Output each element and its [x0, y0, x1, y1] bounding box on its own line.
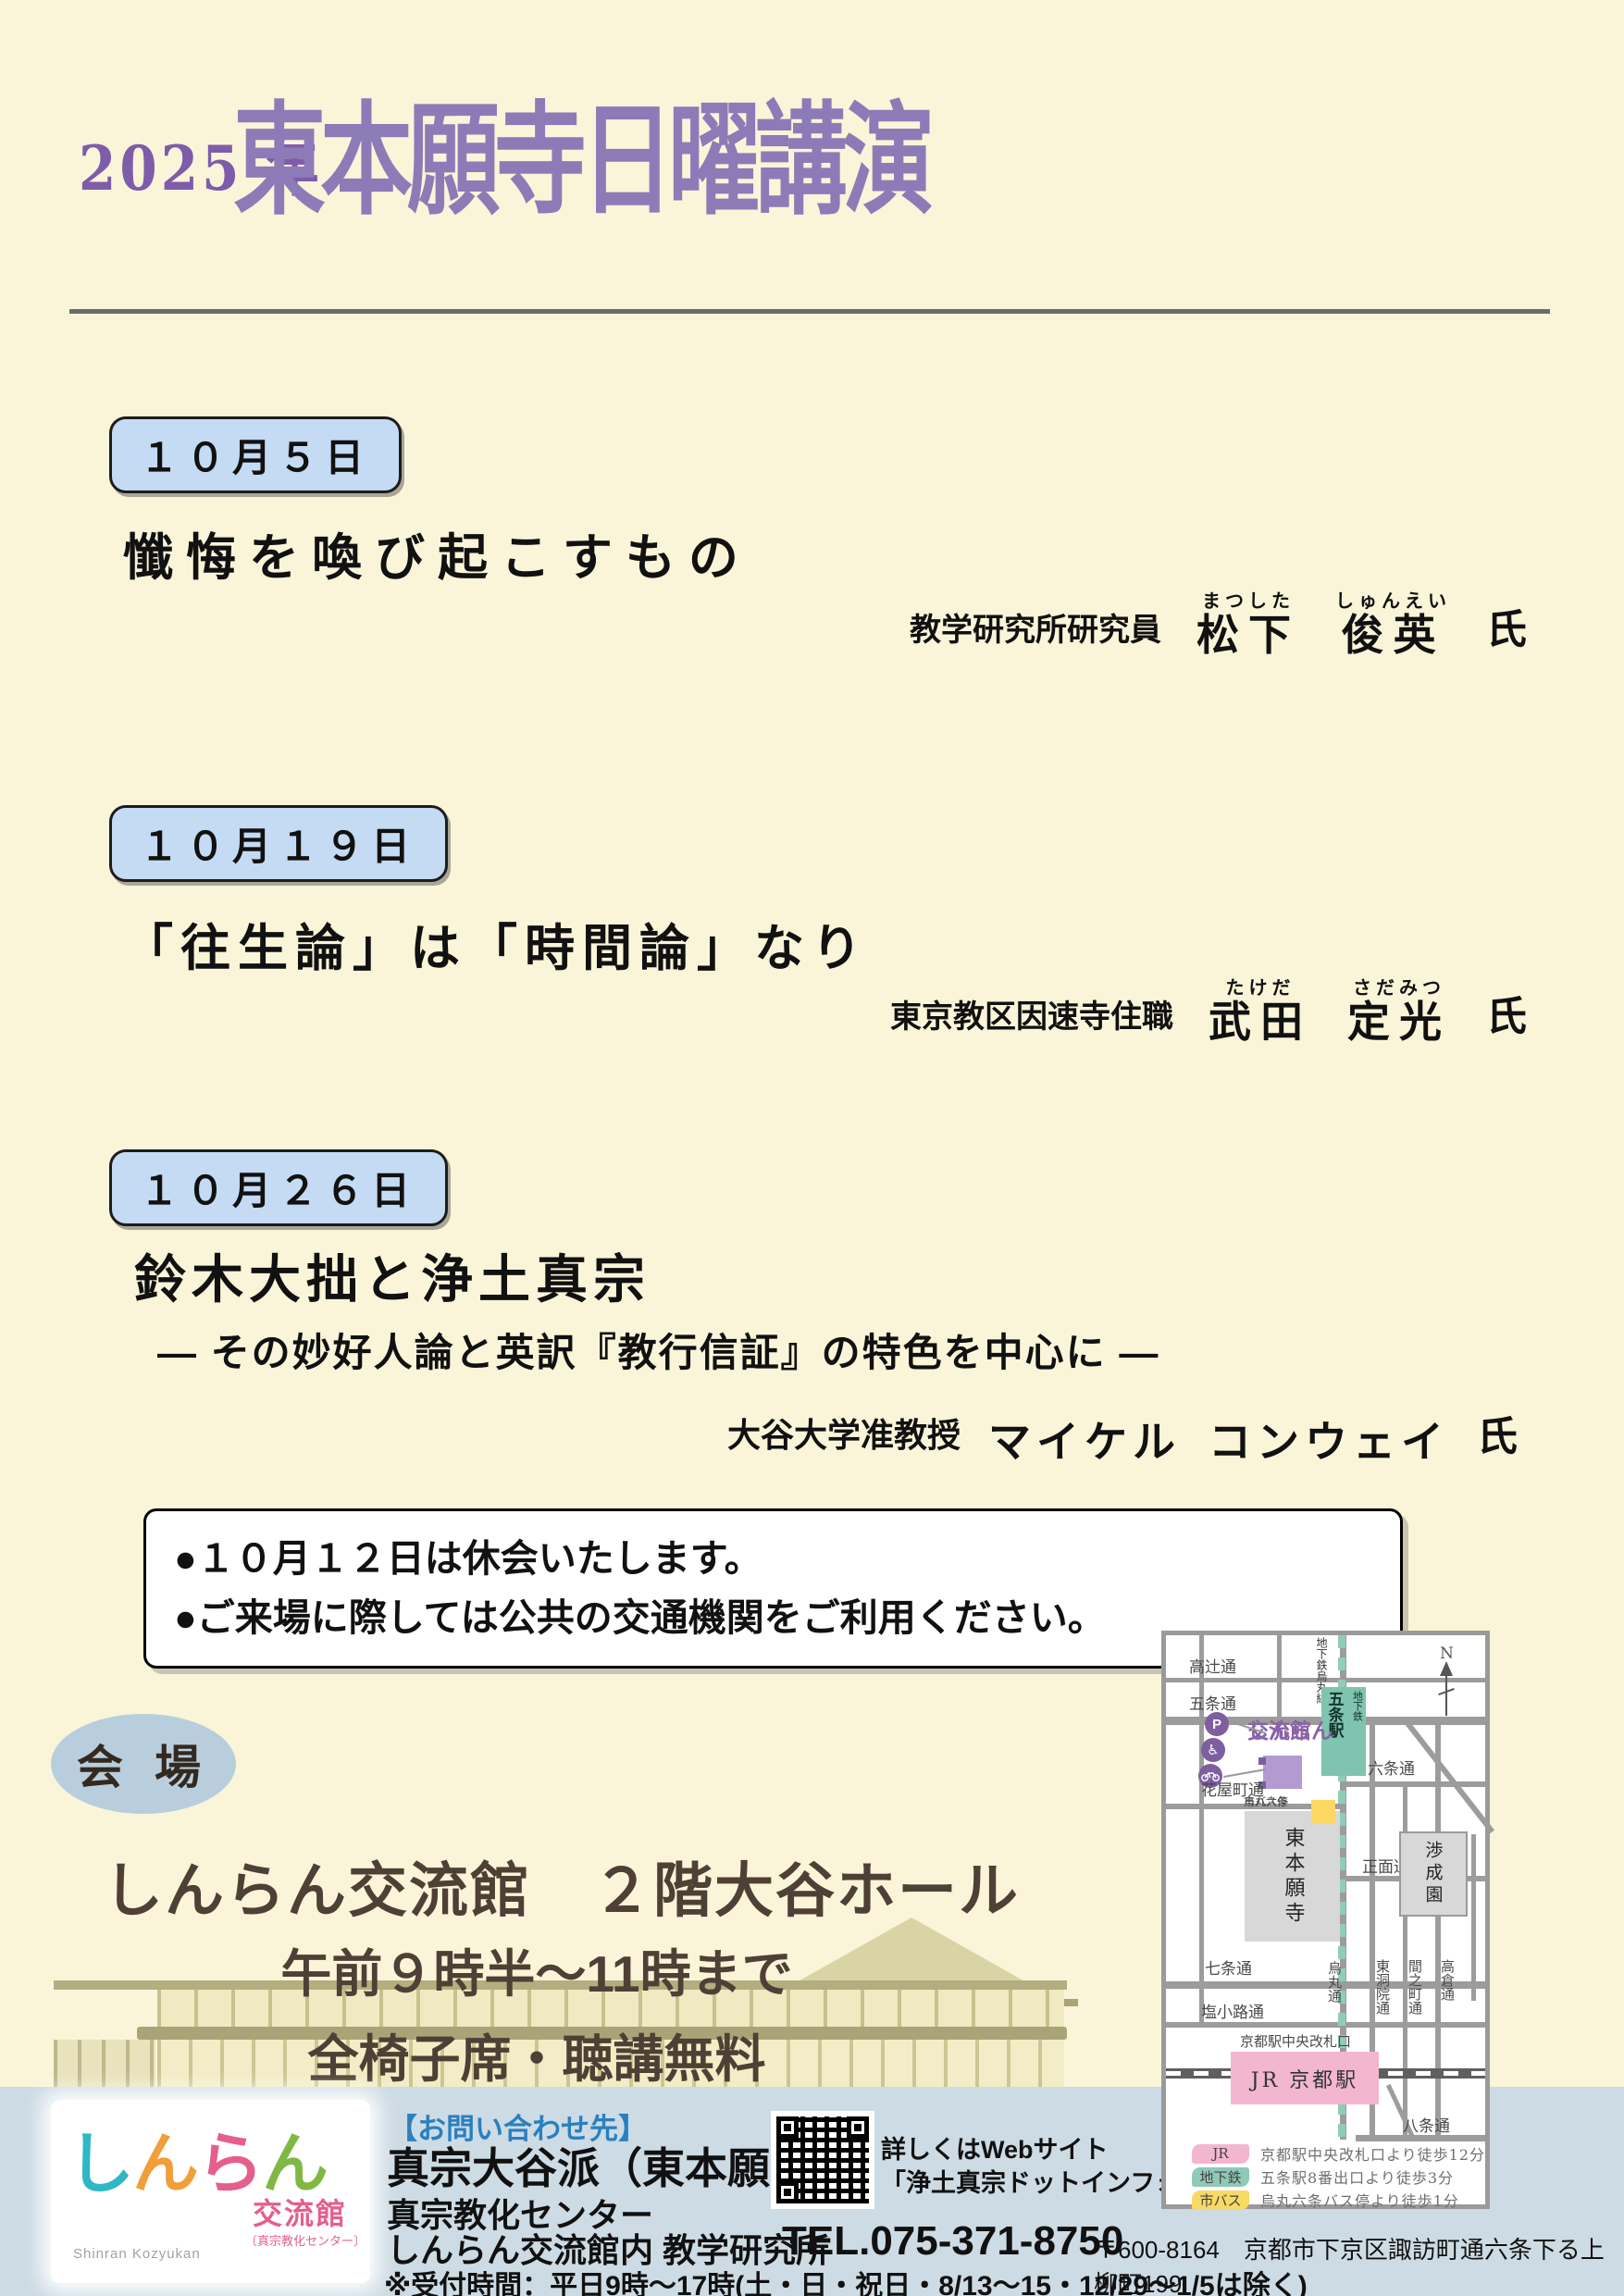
lecture3-lastname-text: コンウェイ	[1209, 1420, 1449, 1464]
legend-text-jr: 京都駅中央改札口より徒歩12分	[1260, 2142, 1485, 2165]
lecture1-affiliation: 教学研究所研究員	[910, 604, 1161, 657]
street-label-takakura: 高倉通	[1438, 1959, 1457, 2001]
logo-romaji: Shinran Kozyukan	[73, 2246, 201, 2262]
lecture3-subtitle: ― その妙好人論と英訳『教行信証』の特色を中心に ―	[157, 1322, 1159, 1378]
map-street-line	[1340, 1781, 1485, 1787]
legend-text-bus: 烏丸六条バス停より徒歩1分	[1260, 2189, 1459, 2211]
lecture2-givenname-furigana: さだみつ	[1353, 979, 1445, 999]
logo-center-text: 〔真宗教化センター〕	[245, 2231, 366, 2249]
kyoto-gate-label: 京都駅中央改札口	[1240, 2031, 1351, 2051]
map-street-line	[1356, 2135, 1485, 2141]
shoseien-label: 渉成園	[1421, 1841, 1446, 1907]
lecture2-honorific: 氏	[1486, 983, 1527, 1044]
lecture3-speaker: 大谷大学准教授 マイケル コンウェイ 氏	[727, 1399, 1518, 1464]
shinran-kozyukan-logo: しんらん 交流館 〔真宗教化センター〕 Shinran Kozyukan	[51, 2100, 370, 2283]
notice-line-1: ●１０月１２日は休会いたします。	[174, 1530, 1372, 1589]
lecture2-surname-furigana: たけだ	[1226, 979, 1295, 999]
higashi-honganji-block: 東本願寺	[1245, 1811, 1340, 1942]
lecture2-givenname-kanji: 定光	[1347, 999, 1451, 1044]
lecture2-givenname: さだみつ 定光	[1347, 979, 1451, 1044]
lecture1-surname: まつした 松下	[1196, 592, 1300, 657]
compass-north-label: N	[1440, 1644, 1454, 1663]
lecture2-date-badge: １０月１９日	[109, 805, 448, 882]
legend-chip-subway: 地下鉄	[1192, 2167, 1249, 2187]
higashi-honganji-label: 東本願寺	[1278, 1827, 1308, 1927]
header-rule	[69, 309, 1550, 314]
lecture2-surname-kanji: 武田	[1209, 999, 1312, 1044]
shoseien-block: 渉成園	[1399, 1831, 1468, 1917]
lecture1-honorific: 氏	[1486, 596, 1527, 657]
street-label-takatsuji: 高辻通	[1189, 1654, 1236, 1677]
telephone-number: TEL.075-371-8750	[782, 2218, 1123, 2265]
map-street-line	[1471, 1834, 1476, 2001]
street-label-shiokoji: 塩小路通	[1201, 1999, 1264, 2022]
map-street-line	[1405, 1720, 1494, 1833]
lecture1-date-badge: １０月５日	[109, 416, 402, 493]
map-street-line	[1277, 1635, 1282, 1717]
lecture2-speaker: 東京教区因速寺住職 たけだ 武田 さだみつ 定光 氏	[890, 979, 1527, 1044]
venue-time: 午前９時半～11時まで	[0, 1932, 1073, 2006]
parking-icon: P	[1205, 1712, 1229, 1736]
lecture3-date-badge: １０月２６日	[109, 1149, 448, 1226]
station-type: 地下鉄	[1350, 1691, 1365, 1776]
reception-hours: ※受付時間：平日9時～17時(土・日・祝日・8/13～15・12/29～1/5は…	[384, 2263, 1308, 2296]
venue-seating: 全椅子席・聴講無料	[0, 2017, 1073, 2091]
legend-row-jr: JR 京都駅中央改札口より徒歩12分	[1192, 2142, 1479, 2165]
lecture3-affiliation: 大谷大学准教授	[727, 1409, 961, 1464]
logo-char-n1: ん	[132, 2128, 197, 2202]
lecture2-title: 「往生論」は「時間論」なり	[123, 907, 869, 980]
street-label-hachijo: 八条通	[1403, 2113, 1450, 2136]
venue-name: しんらん交流館 ２階大谷ホール	[104, 1843, 1020, 1929]
page-title: 東本願寺日曜講演	[233, 61, 929, 238]
bus-stop-line2: 烏丸六条	[1244, 1794, 1288, 1809]
venue-label-oval: 会 場	[51, 1714, 236, 1814]
qr-finder-icon	[776, 2181, 799, 2203]
lecture1-speaker: 教学研究所研究員 まつした 松下 しゅんえい 俊英 氏	[910, 592, 1527, 657]
map-shinran-building	[1263, 1756, 1302, 1789]
website-note-line1: 詳しくはWebサイト	[881, 2129, 1109, 2166]
street-label-shichijo: 七条通	[1205, 1955, 1252, 1979]
street-label-rokujo: 六条通	[1368, 1756, 1415, 1779]
logo-kokan-text: 交流館	[253, 2191, 347, 2233]
lecture1-givenname-furigana: しゅんえい	[1335, 592, 1451, 613]
lecture3-lastname: コンウェイ	[1209, 1399, 1449, 1464]
lecture1-givenname-kanji: 俊英	[1342, 613, 1445, 657]
legend-text-subway: 五条駅8番出口より徒歩3分	[1260, 2166, 1454, 2188]
lecture1-surname-furigana: まつした	[1202, 592, 1295, 613]
legend-chip-bus: 市バス	[1192, 2191, 1249, 2210]
lecture3-honorific: 氏	[1477, 1403, 1518, 1464]
jr-kyoto-station: JR 京都駅	[1231, 2052, 1379, 2104]
street-label-higashinotoin: 東洞院通	[1373, 1959, 1393, 2015]
qr-code	[771, 2111, 874, 2209]
lecture3-firstname: マイケル	[988, 1399, 1181, 1464]
wheelchair-icon: ♿	[1201, 1738, 1225, 1762]
legend-row-bus: 市バス 烏丸六条バス停より徒歩1分	[1192, 2189, 1479, 2211]
qr-finder-icon	[776, 2116, 799, 2139]
street-label-gojo: 五条通	[1189, 1691, 1236, 1714]
lecture3-firstname-text: マイケル	[988, 1420, 1181, 1464]
legend-chip-jr: JR	[1192, 2144, 1249, 2164]
legend-row-subway: 地下鉄 五条駅8番出口より徒歩3分	[1192, 2166, 1479, 2188]
lecture1-surname-kanji: 松下	[1196, 613, 1300, 657]
qr-finder-icon	[847, 2116, 869, 2139]
lecture3-title: 鈴木大拙と浄土真宗	[134, 1238, 651, 1313]
map-building-notch	[1258, 1757, 1266, 1765]
lecture1-givenname: しゅんえい 俊英	[1335, 592, 1451, 657]
logo-char-shi: し	[68, 2128, 132, 2202]
bus-stop-marker	[1311, 1800, 1335, 1824]
qr-pattern	[776, 2116, 869, 2203]
lecture1-title: 懺悔を喚び起こすもの	[123, 516, 751, 590]
poster: 2025 年 東本願寺日曜講演 １０月５日 懺悔を喚び起こすもの 教学研究所研究…	[0, 0, 1624, 2296]
lecture2-surname: たけだ 武田	[1209, 979, 1312, 1044]
street-label-ainomachi: 間之町通	[1406, 1959, 1425, 2015]
lecture2-affiliation: 東京教区因速寺住職	[890, 991, 1173, 1044]
access-map: 地下鉄烏丸線 五条駅 地下鉄 N しんらん 交流館 P ♿ 高辻通 五条通 六条…	[1161, 1631, 1490, 2209]
street-label-karasuma: 烏丸通	[1325, 1961, 1345, 2003]
